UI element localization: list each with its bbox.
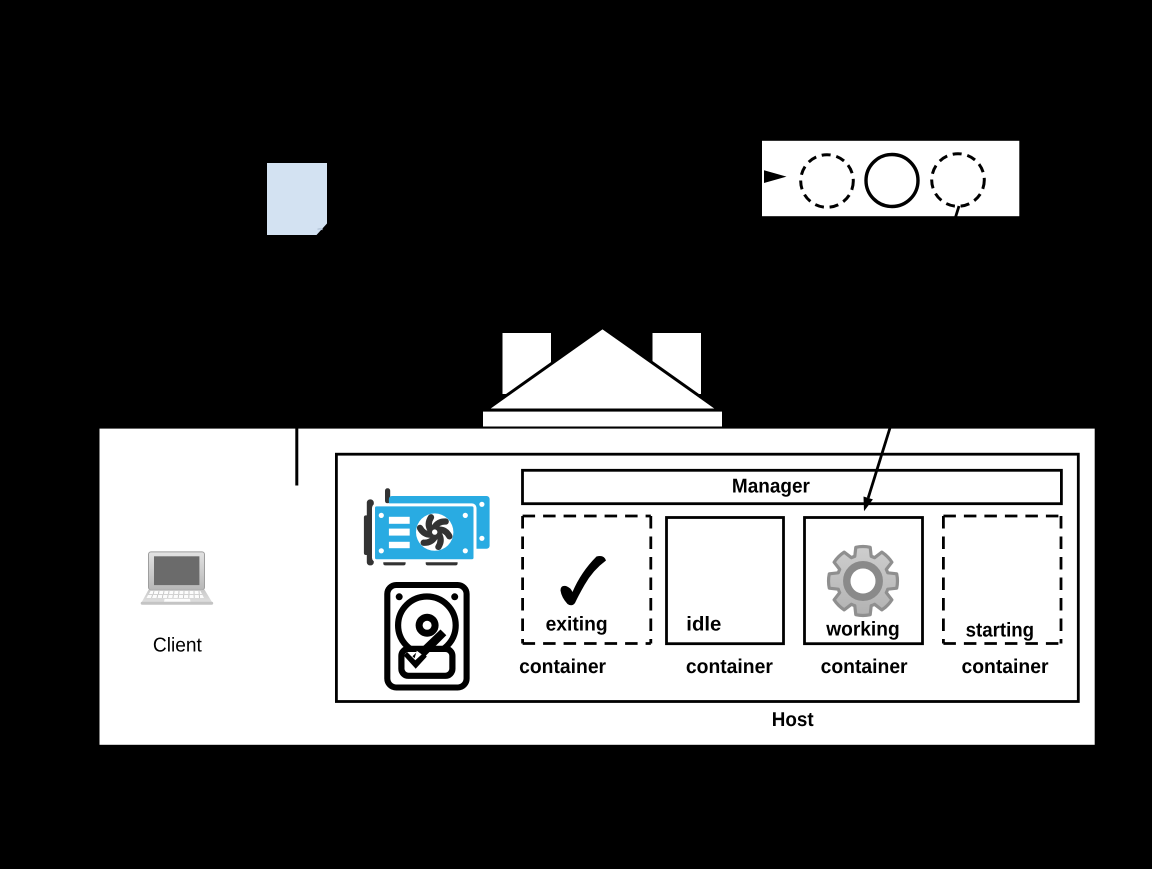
svg-text:container: container [962,656,1049,678]
svg-text:exiting: exiting [546,613,608,635]
svg-text:starting: starting [966,620,1035,642]
svg-text:container: container [519,656,606,678]
svg-text:working: working [825,619,899,641]
svg-text:Manager: Manager [732,475,810,497]
svg-text:container: container [821,656,908,678]
svg-text:idle: idle [686,613,721,635]
svg-text:Host: Host [772,709,814,731]
svg-text:container: container [686,656,773,678]
svg-text:Client: Client [153,635,202,657]
